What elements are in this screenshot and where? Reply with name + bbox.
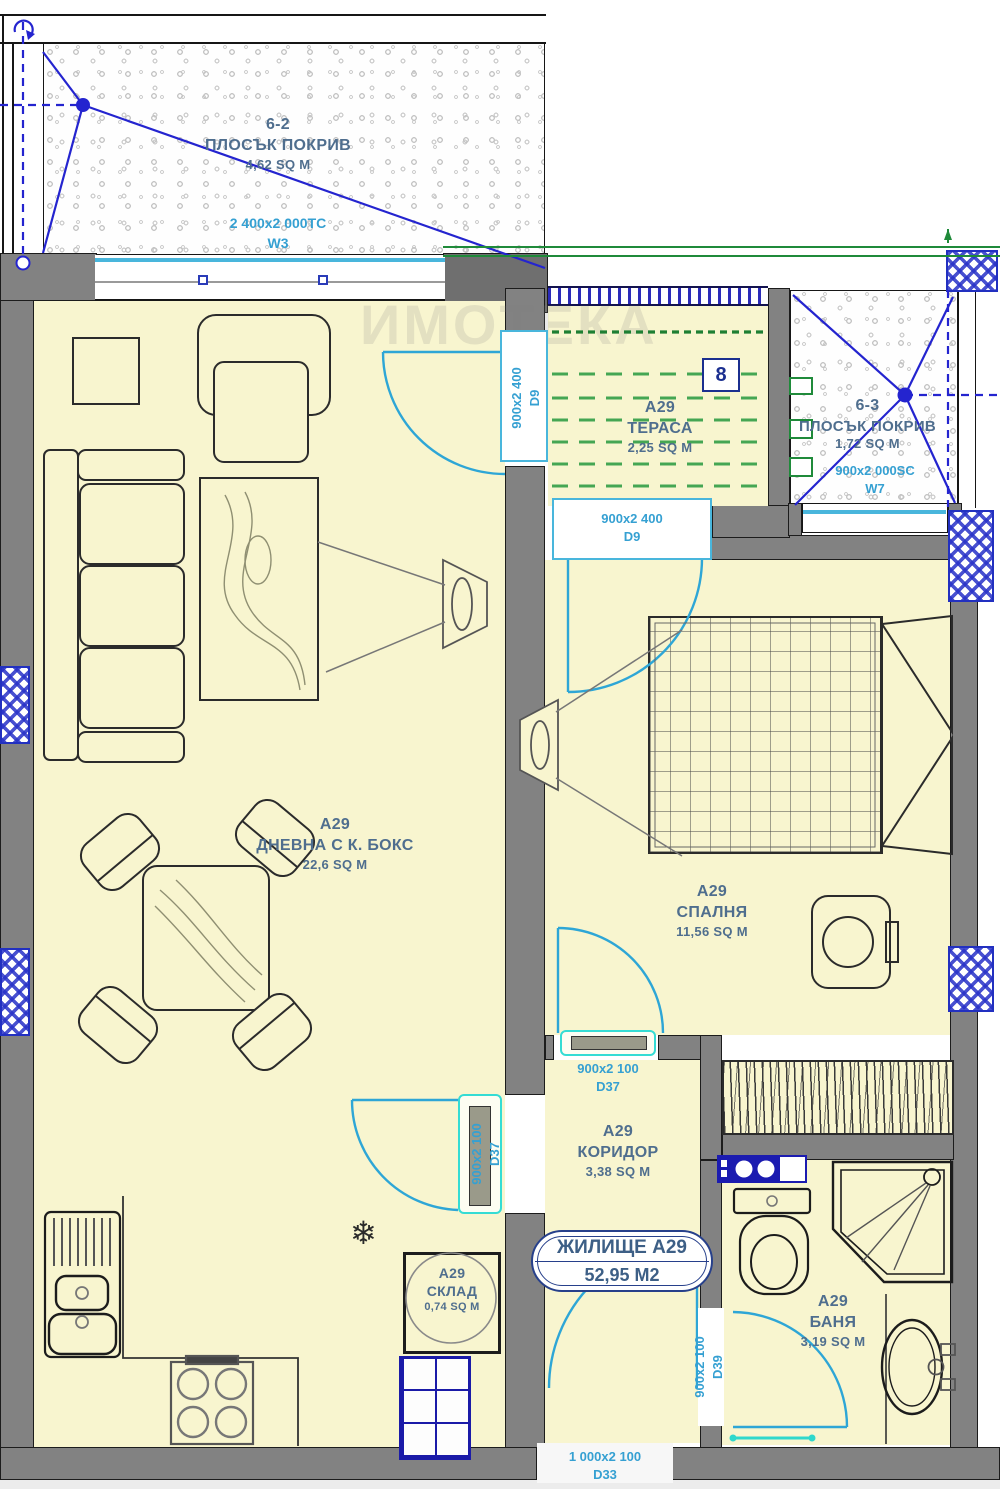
- green-arrow-icon: [944, 229, 952, 240]
- room-area: 11,56 SQ M: [622, 924, 802, 941]
- window-code: W7: [795, 480, 955, 498]
- toilet: [734, 1189, 810, 1294]
- node-marker-label: 8: [715, 364, 726, 387]
- shower-cabin: [833, 1162, 952, 1282]
- tv-living: [318, 542, 487, 672]
- threshold-dot: [809, 1435, 816, 1442]
- label-room-terrace: А29 ТЕРАСА 2,25 SQ M: [570, 398, 750, 456]
- roof-code: 6-2: [158, 115, 398, 136]
- sofa-back: [44, 450, 78, 760]
- door-size: 900x2 100: [691, 1308, 709, 1426]
- label-window-w3: 2 400x2 000ТС W3: [168, 214, 388, 253]
- rotation-arrow-icon: [26, 30, 35, 40]
- label-room-bedroom: А29 СПАЛНЯ 11,56 SQ M: [622, 882, 802, 940]
- room-area: 22,6 SQ M: [225, 857, 445, 874]
- roof-name: ПЛОСЪК ПОКРИВ: [158, 136, 398, 157]
- room-name: ДНЕВНА С К. БОКС: [225, 836, 445, 857]
- door-label-d9-terrace-bedroom: 900x2 400 D9: [554, 510, 710, 546]
- roof-drain-node: [17, 257, 30, 270]
- room-apt: А29: [225, 815, 445, 836]
- door-size: 900x2 400: [554, 510, 710, 528]
- label-room-bath: А29 БАНЯ 3,19 SQ M: [743, 1292, 923, 1350]
- label-window-w7: 900x2 000SC W7: [795, 462, 955, 498]
- room-name: БАНЯ: [743, 1313, 923, 1334]
- room-name: КОРИДОР: [528, 1143, 708, 1164]
- door-code: D9: [526, 332, 544, 464]
- snowflake-icon: ❄: [350, 1214, 377, 1252]
- stove: [171, 1356, 253, 1444]
- roof-name: ПЛОСЪК ПОКРИВ: [775, 417, 960, 437]
- room-apt: А29: [528, 1122, 708, 1143]
- bedroom-chair-arm: [886, 922, 898, 962]
- living-furniture: [44, 315, 330, 1077]
- door-size: 1 000x2 100: [540, 1448, 670, 1466]
- roof-drain-node: [76, 98, 90, 112]
- sofa-armrest: [78, 732, 184, 762]
- window-size: 2 400x2 000ТС: [168, 214, 388, 234]
- door-size: 900x2 400: [508, 332, 526, 464]
- kitchen-sink: [45, 1212, 120, 1357]
- apartment-tag-title: ЖИЛИЩЕ А29: [533, 1237, 711, 1259]
- plan-linework: [0, 0, 1000, 1489]
- door-label-wrap-d39: 900x2 100 D39: [688, 1308, 730, 1426]
- window-code: W3: [168, 234, 388, 254]
- room-apt: А29: [622, 882, 802, 903]
- door-code: D9: [554, 528, 710, 546]
- threshold-dot: [730, 1435, 737, 1442]
- room-name: СПАЛНЯ: [622, 903, 802, 924]
- door-label-box-d9-bottom: 900x2 400 D9: [552, 498, 712, 560]
- roof-area: 4,62 SQ M: [158, 157, 398, 174]
- door-label-d39-bath: 900x2 100 D39: [688, 1308, 730, 1426]
- roof-area: 1,72 SQ M: [775, 436, 960, 453]
- room-area: 0,74 SQ M: [405, 1300, 499, 1314]
- sofa-cushion: [80, 566, 184, 646]
- door-size: 900x2 100: [548, 1060, 668, 1078]
- door-code: D37: [548, 1078, 668, 1096]
- apartment-tag: ЖИЛИЩЕ А29 52,95 М2: [531, 1230, 713, 1292]
- room-apt: А29: [405, 1264, 499, 1282]
- door-label-d9-living-terrace: 900x2 400 D9: [502, 332, 550, 464]
- sofa-armrest: [78, 450, 184, 480]
- door-size: 900x2 100: [468, 1094, 486, 1214]
- room-area: 3,19 SQ M: [743, 1334, 923, 1351]
- node-marker-8: 8: [702, 358, 740, 392]
- apartment-tag-area: 52,95 М2: [533, 1265, 711, 1286]
- sofa-cushion: [80, 648, 184, 728]
- door-code: D39: [709, 1308, 727, 1426]
- door-label-wrap-d37-side: 900x2 100 D37: [466, 1094, 506, 1214]
- roof-code: 6-3: [775, 396, 960, 417]
- floor-plan: ИМОТЕКА: [0, 0, 1000, 1489]
- room-area: 2,25 SQ M: [570, 440, 750, 457]
- door-label-box-d9-side: 900x2 400 D9: [500, 330, 548, 462]
- label-roof-6-3: 6-3 ПЛОСЪК ПОКРИВ 1,72 SQ M: [775, 396, 960, 453]
- label-roof-6-2: 6-2 ПЛОСЪК ПОКРИВ 4,62 SQ M: [158, 115, 398, 173]
- door-code: D33: [540, 1466, 670, 1484]
- bedroom-chair-seat: [823, 917, 873, 967]
- pillow: [882, 616, 952, 732]
- side-table: [73, 338, 139, 404]
- coffee-table: [200, 478, 318, 700]
- sofa-cushion: [80, 484, 184, 564]
- label-room-corridor: А29 КОРИДОР 3,38 SQ M: [528, 1122, 708, 1180]
- room-apt: А29: [570, 398, 750, 419]
- door-label-d33-entry: 1 000x2 100 D33: [540, 1448, 670, 1484]
- armchair-seat: [214, 362, 308, 462]
- window-size: 900x2 000SC: [795, 462, 955, 480]
- washing-machine: [718, 1156, 806, 1182]
- door-lintel-d37-top: [560, 1030, 656, 1056]
- door-label-d37-corridor-living: 900x2 100 D37: [466, 1094, 506, 1214]
- label-room-storage: А29 СКЛАД 0,74 SQ M: [405, 1264, 499, 1315]
- door-code: D37: [486, 1094, 504, 1214]
- room-name: ТЕРАСА: [570, 419, 750, 440]
- door-label-d37-corridor-bedroom: 900x2 100 D37: [548, 1060, 668, 1096]
- pillow: [882, 738, 952, 854]
- apartment-tag-divider: [535, 1261, 709, 1262]
- room-area: 3,38 SQ M: [528, 1164, 708, 1181]
- room-apt: А29: [743, 1292, 923, 1313]
- room-name: СКЛАД: [405, 1282, 499, 1300]
- tv-bedroom: [520, 630, 682, 856]
- label-room-living: А29 ДНЕВНА С К. БОКС 22,6 SQ M: [225, 815, 445, 873]
